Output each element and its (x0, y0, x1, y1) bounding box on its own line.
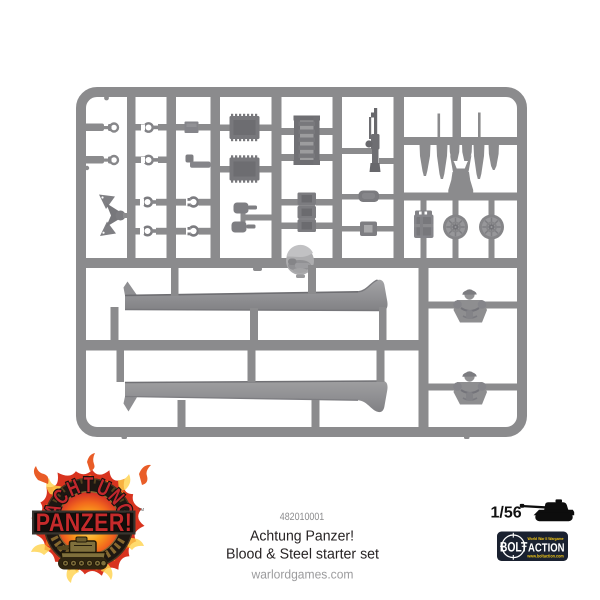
svg-text:Achtung Panzer!: Achtung Panzer! (250, 529, 354, 545)
svg-text:TM: TM (138, 507, 145, 512)
svg-text:www.boltaction.com: www.boltaction.com (526, 553, 563, 558)
svg-text:Blood & Steel starter set: Blood & Steel starter set (226, 547, 379, 563)
svg-text:ACTION: ACTION (528, 540, 565, 554)
svg-text:PANZER!: PANZER! (36, 509, 133, 537)
svg-text:warlordgames.com: warlordgames.com (251, 568, 354, 582)
svg-text:1/56: 1/56 (491, 505, 522, 522)
svg-text:482010001: 482010001 (280, 511, 325, 523)
svg-text:World War II Wargame: World War II Wargame (528, 536, 565, 541)
svg-text:T: T (84, 473, 94, 497)
svg-text:BOLT: BOLT (500, 539, 528, 554)
